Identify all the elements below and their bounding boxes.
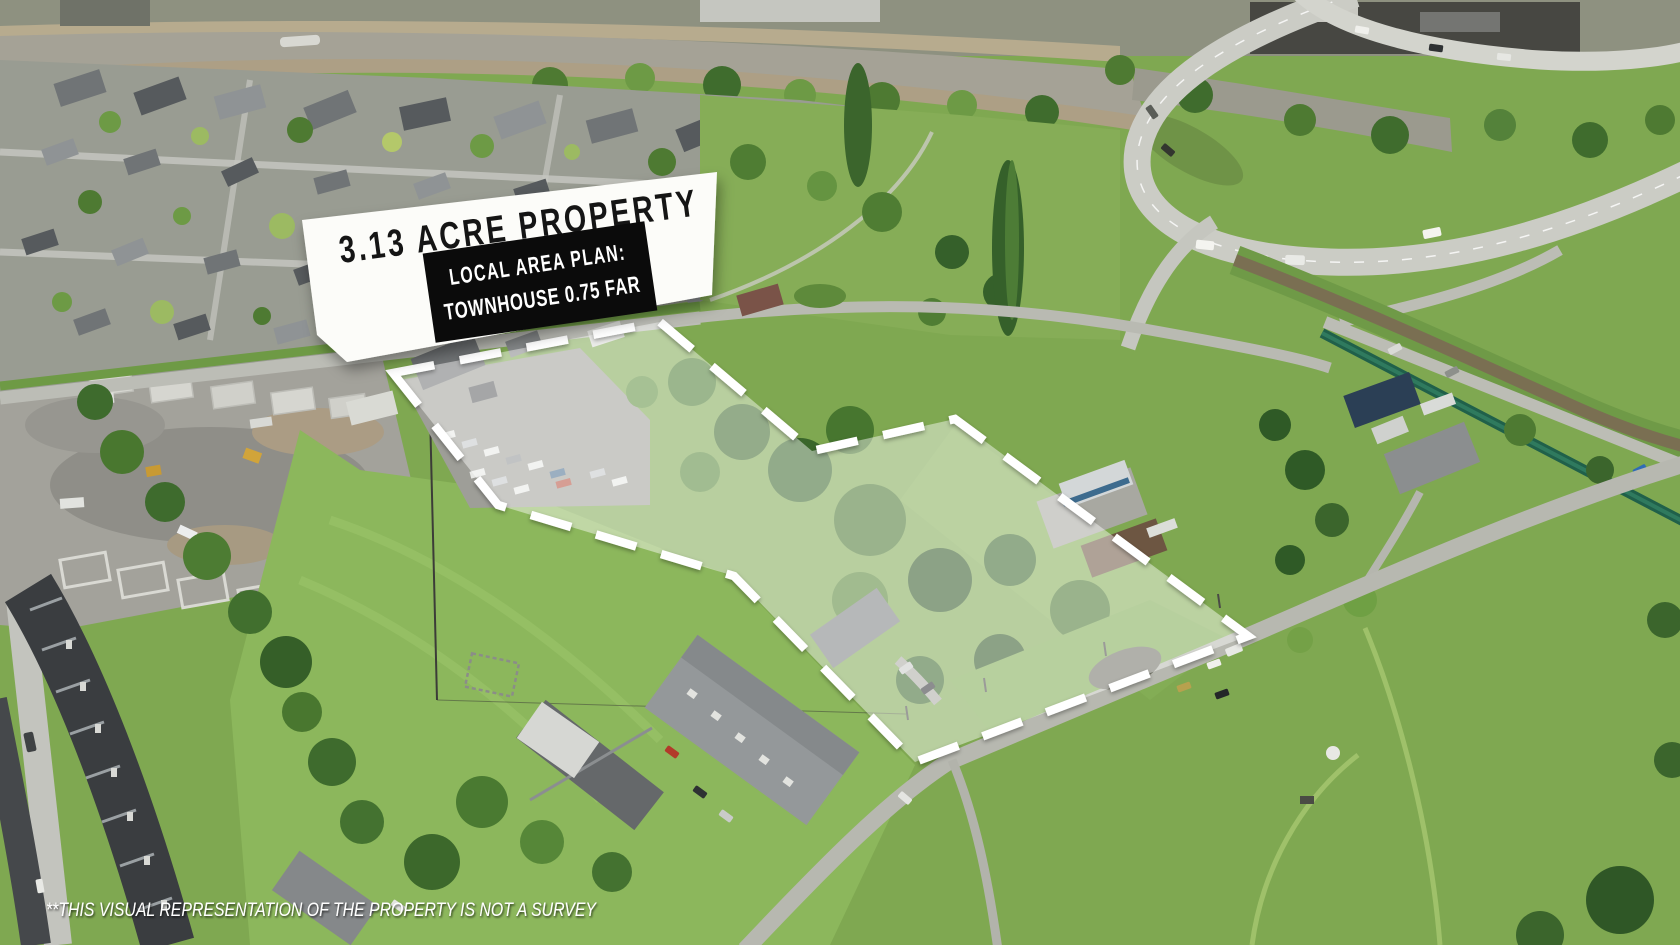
picnic-table xyxy=(1300,796,1314,804)
aerial-photo-canvas: 3.13 ACRE PROPERTY LOCAL AREA PLAN: TOWN… xyxy=(0,0,1680,945)
aerial-property-image: 3.13 ACRE PROPERTY LOCAL AREA PLAN: TOWN… xyxy=(0,0,1680,945)
white-tank xyxy=(1326,746,1340,760)
disclaimer-text: **THIS VISUAL REPRESENTATION OF THE PROP… xyxy=(46,899,598,921)
